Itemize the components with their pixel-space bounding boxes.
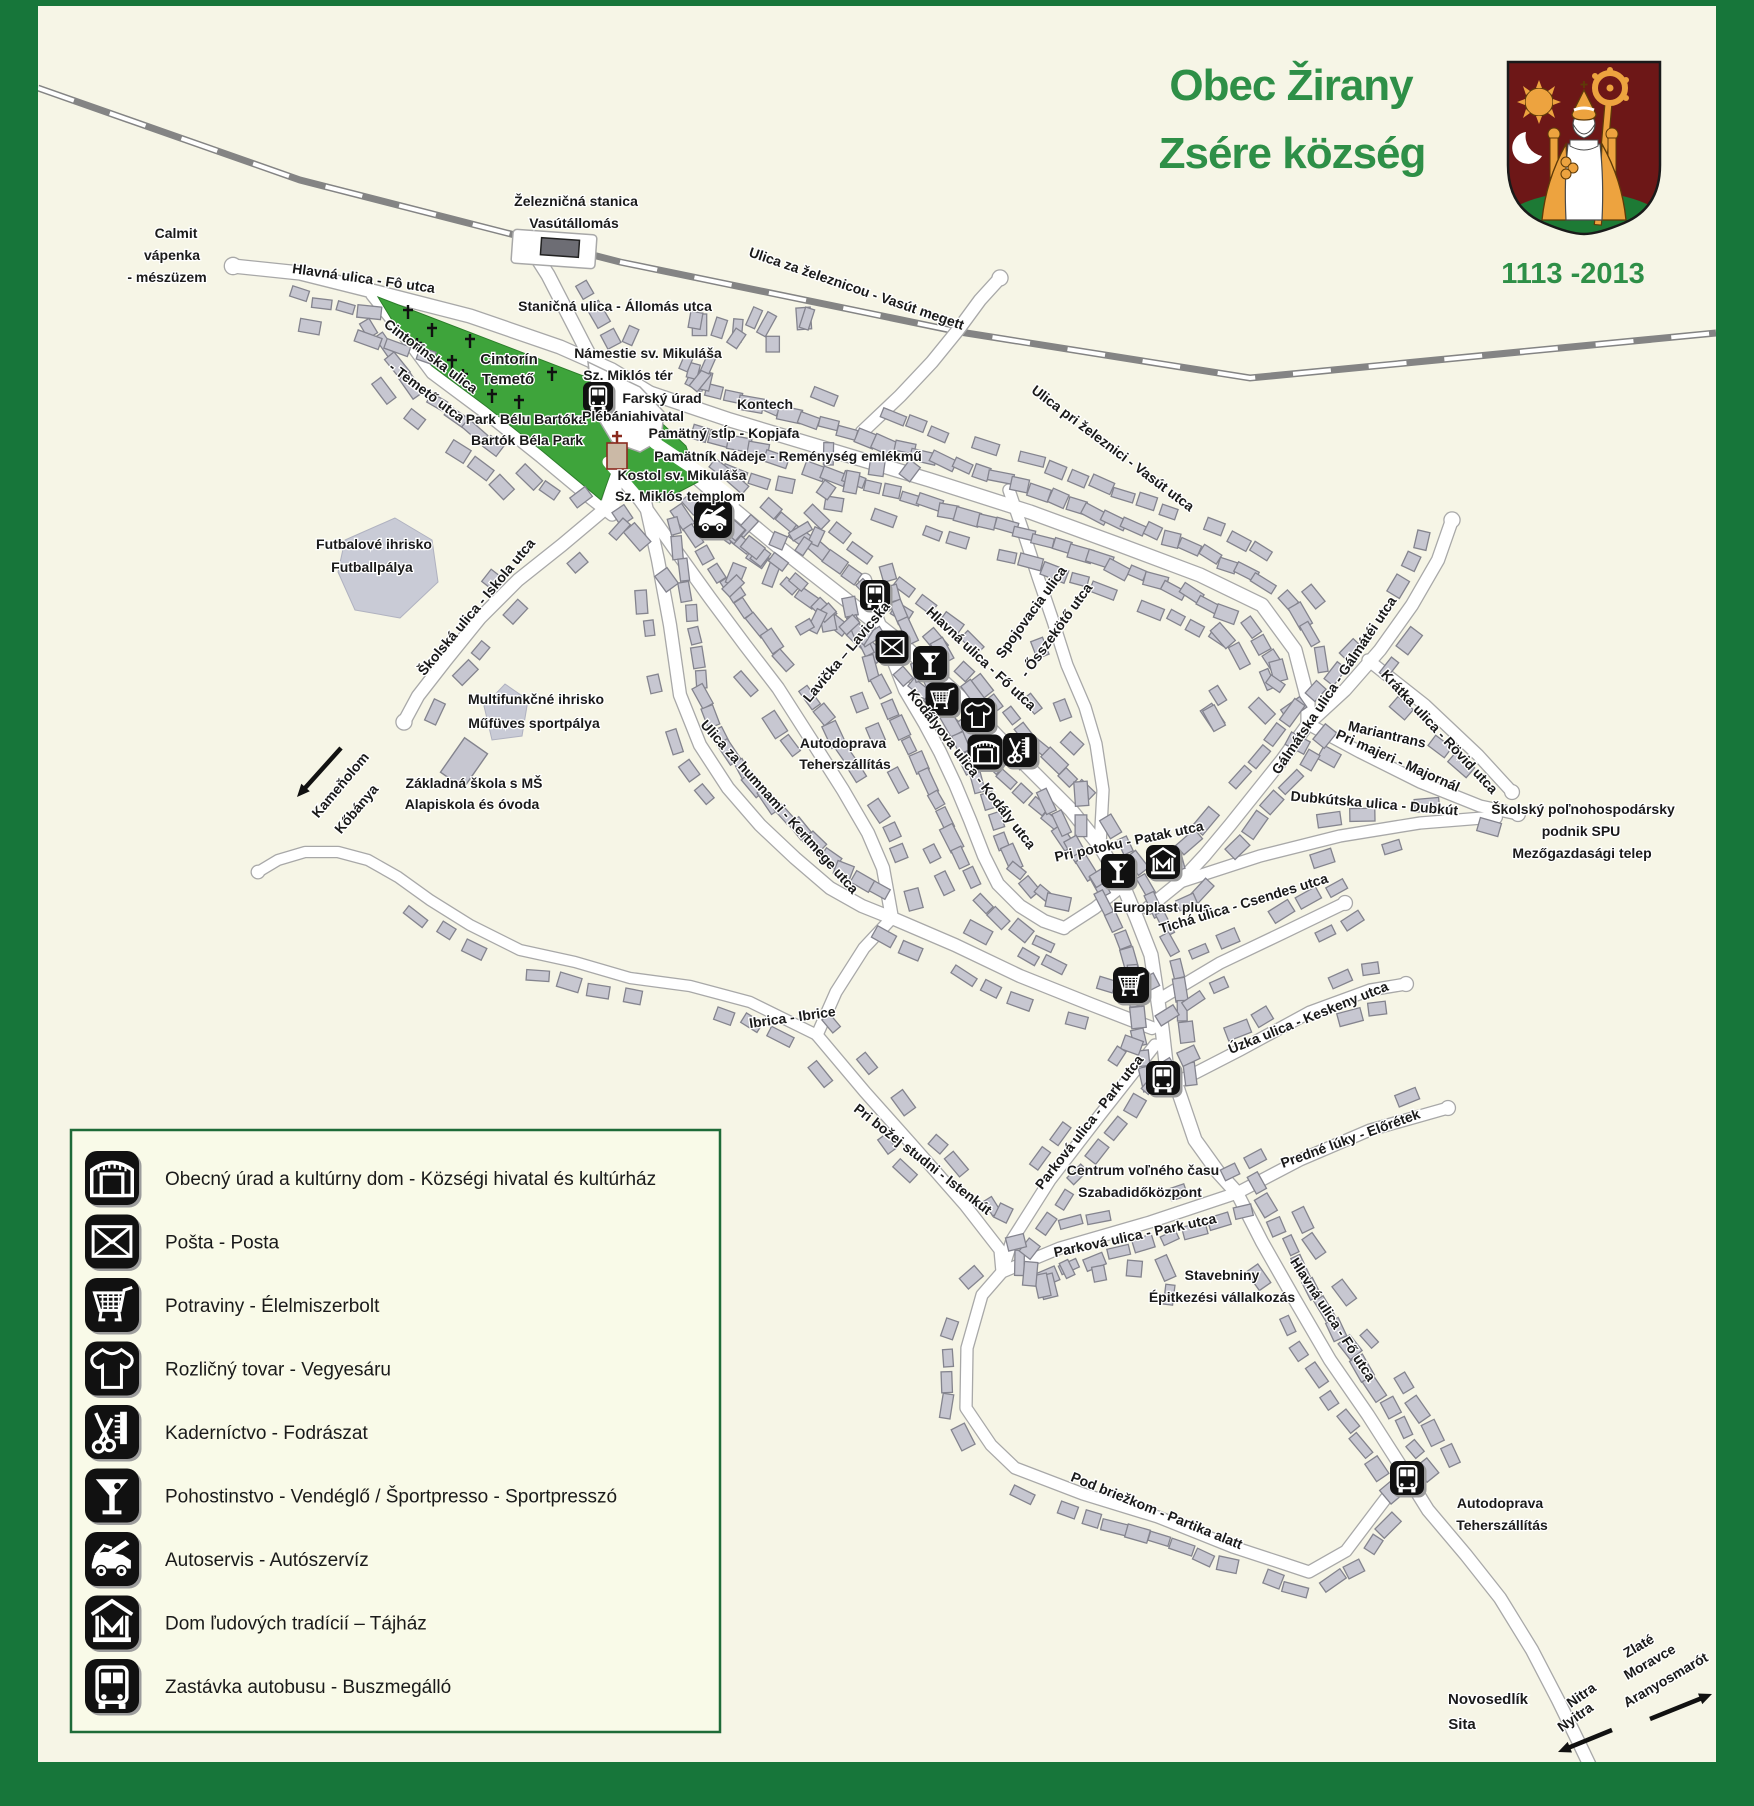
svg-text:Dom ľudových tradícií – Tájház: Dom ľudových tradícií – Tájház bbox=[165, 1614, 427, 1635]
svg-text:Autoservis - Autószervíz: Autoservis - Autószervíz bbox=[165, 1550, 369, 1571]
svg-text:Farský úrad: Farský úrad bbox=[622, 390, 701, 406]
svg-text:Autodoprava: Autodoprava bbox=[800, 735, 887, 751]
svg-text:Potraviny - Élelmiszerbolt: Potraviny - Élelmiszerbolt bbox=[165, 1296, 380, 1317]
svg-text:Kontech: Kontech bbox=[737, 396, 793, 412]
svg-text:Sz. Miklós tér: Sz. Miklós tér bbox=[583, 367, 673, 383]
svg-text:Sita: Sita bbox=[1448, 1716, 1476, 1733]
svg-text:Futbalové ihrisko: Futbalové ihrisko bbox=[316, 536, 432, 552]
svg-text:- mészüzem: - mészüzem bbox=[127, 269, 206, 285]
svg-text:Mezőgazdasági telep: Mezőgazdasági telep bbox=[1512, 845, 1651, 861]
svg-text:Námestie sv. Mikuláša: Námestie sv. Mikuláša bbox=[574, 345, 722, 361]
svg-text:Teherszállítás: Teherszállítás bbox=[1456, 1517, 1548, 1533]
svg-text:Futballpálya: Futballpálya bbox=[331, 559, 413, 575]
svg-text:Temető: Temető bbox=[482, 371, 534, 388]
svg-text:Vasútállomás: Vasútállomás bbox=[529, 215, 619, 231]
svg-text:Centrum voľného času: Centrum voľného času bbox=[1067, 1162, 1219, 1178]
svg-text:Alapiskola és óvoda: Alapiskola és óvoda bbox=[405, 796, 540, 812]
svg-text:Kaderníctvo - Fodrászat: Kaderníctvo - Fodrászat bbox=[165, 1423, 368, 1444]
svg-text:Školský poľnohospodársky: Školský poľnohospodársky bbox=[1491, 800, 1675, 817]
svg-text:1113 -2013: 1113 -2013 bbox=[1501, 258, 1645, 290]
svg-text:Multifunkčné ihrisko: Multifunkčné ihrisko bbox=[468, 691, 604, 707]
svg-text:Pamätný stĺp - Kopjafa: Pamätný stĺp - Kopjafa bbox=[649, 424, 800, 441]
svg-text:vápenka: vápenka bbox=[144, 247, 200, 263]
svg-text:Obec Žirany: Obec Žirany bbox=[1169, 60, 1414, 110]
svg-text:Cintorín: Cintorín bbox=[480, 351, 538, 368]
svg-text:Rozličný tovar - Vegyesáru: Rozličný tovar - Vegyesáru bbox=[165, 1360, 391, 1381]
svg-text:Bartók Béla Park: Bartók Béla Park bbox=[471, 432, 583, 448]
svg-text:Teherszállítás: Teherszállítás bbox=[799, 756, 891, 772]
svg-text:Sz. Miklós templom: Sz. Miklós templom bbox=[615, 488, 745, 504]
svg-text:Műfüves sportpálya: Műfüves sportpálya bbox=[468, 715, 600, 731]
svg-text:Pamätník Nádeje - Reménység em: Pamätník Nádeje - Reménység emlékmű bbox=[654, 448, 922, 464]
svg-text:Pohostinstvo - Vendéglő / Špor: Pohostinstvo - Vendéglő / Športpresso - … bbox=[165, 1486, 617, 1508]
svg-text:Novosedlík: Novosedlík bbox=[1448, 1691, 1529, 1708]
svg-text:Zastávka autobusu - Buszmegáll: Zastávka autobusu - Buszmegálló bbox=[165, 1677, 451, 1698]
svg-text:Plébániahivatal: Plébániahivatal bbox=[582, 408, 684, 424]
svg-text:podnik SPU: podnik SPU bbox=[1542, 823, 1621, 839]
svg-text:Park Bélu Bartóka: Park Bélu Bartóka bbox=[466, 411, 587, 427]
svg-text:Kostol sv. Mikuláša: Kostol sv. Mikuláša bbox=[618, 467, 747, 483]
svg-text:Obecný úrad a kultúrny dom - K: Obecný úrad a kultúrny dom - Községi hiv… bbox=[165, 1169, 656, 1190]
svg-text:Szabadidőközpont: Szabadidőközpont bbox=[1078, 1184, 1202, 1200]
svg-text:Autodoprava: Autodoprava bbox=[1457, 1495, 1544, 1511]
svg-text:Calmit: Calmit bbox=[155, 225, 198, 241]
svg-text:Základná škola s MŠ: Základná škola s MŠ bbox=[406, 774, 543, 791]
svg-text:Stavebniny: Stavebniny bbox=[1185, 1267, 1260, 1283]
svg-text:Zsére község: Zsére község bbox=[1159, 129, 1426, 178]
svg-text:Pošta - Posta: Pošta - Posta bbox=[165, 1233, 279, 1254]
svg-text:Staničná ulica - Állomás utca: Staničná ulica - Állomás utca bbox=[518, 298, 712, 314]
svg-text:Épitkezési vállalkozás: Épitkezési vállalkozás bbox=[1149, 1289, 1296, 1305]
svg-text:Železničná stanica: Železničná stanica bbox=[514, 192, 638, 209]
